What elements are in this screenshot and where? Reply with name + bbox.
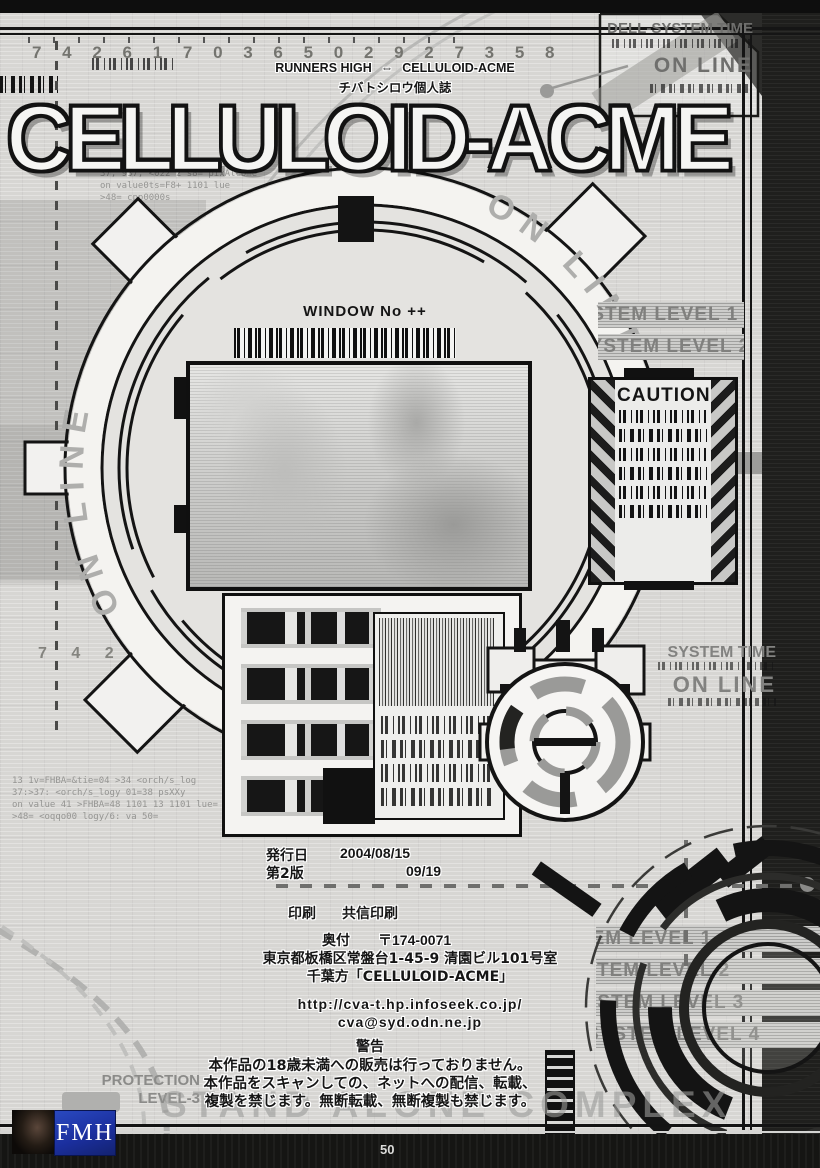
page-number: 50 <box>380 1142 394 1157</box>
address-line: 東京都板橋区常盤台1-45-9 清園ビル101号室 <box>150 948 670 968</box>
postal-code: 〒174-0071 <box>378 930 451 950</box>
warning-line-3: 複製を禁じます。無断転載、無断複製も禁じます。 <box>130 1090 610 1111</box>
issue-label: 発行日 <box>266 845 308 865</box>
okuzuke-label: 奥付 <box>322 930 350 950</box>
website-url: http://cva-t.hp.infoseek.co.jp/ <box>150 996 670 1012</box>
printer-name: 共信印刷 <box>342 903 398 923</box>
print-label: 印刷 <box>288 903 316 923</box>
issue-date: 2004/08/15 <box>340 845 410 861</box>
gray-tab <box>62 1092 120 1112</box>
fmh-logo: FMH <box>12 1110 116 1154</box>
care-of-line: 千葉方「CELLULOID-ACME」 <box>150 966 670 986</box>
edition-label: 第2版 <box>266 863 304 883</box>
edition-date: 09/19 <box>406 863 441 879</box>
footer-light-line <box>0 1131 820 1133</box>
contact-email: cva@syd.odn.ne.jp <box>150 1014 670 1030</box>
scanned-doujin-colophon-page: 7 4 2 6 1 7 0 3 6 5 0 2 9 2 7 3 5 8 RUNN… <box>0 0 820 1168</box>
logo-text: FMH <box>56 1120 114 1147</box>
warning-title: 警告 <box>240 1036 500 1056</box>
logo-face-thumbnail <box>12 1110 54 1154</box>
footer-black-bar <box>0 1134 820 1168</box>
footer-rule <box>0 1124 820 1127</box>
logo-fmh-box: FMH <box>54 1110 116 1156</box>
lens-mechanism-graphic <box>0 0 820 1168</box>
